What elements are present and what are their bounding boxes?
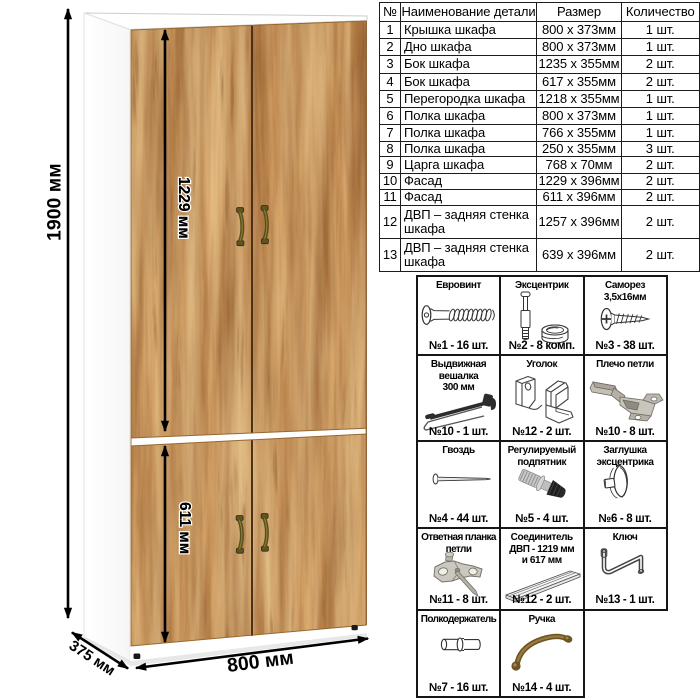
svg-text:1900 мм: 1900 мм <box>44 163 66 241</box>
svg-text:611 мм: 611 мм <box>176 502 193 554</box>
svg-text:1229 мм: 1229 мм <box>175 177 192 239</box>
